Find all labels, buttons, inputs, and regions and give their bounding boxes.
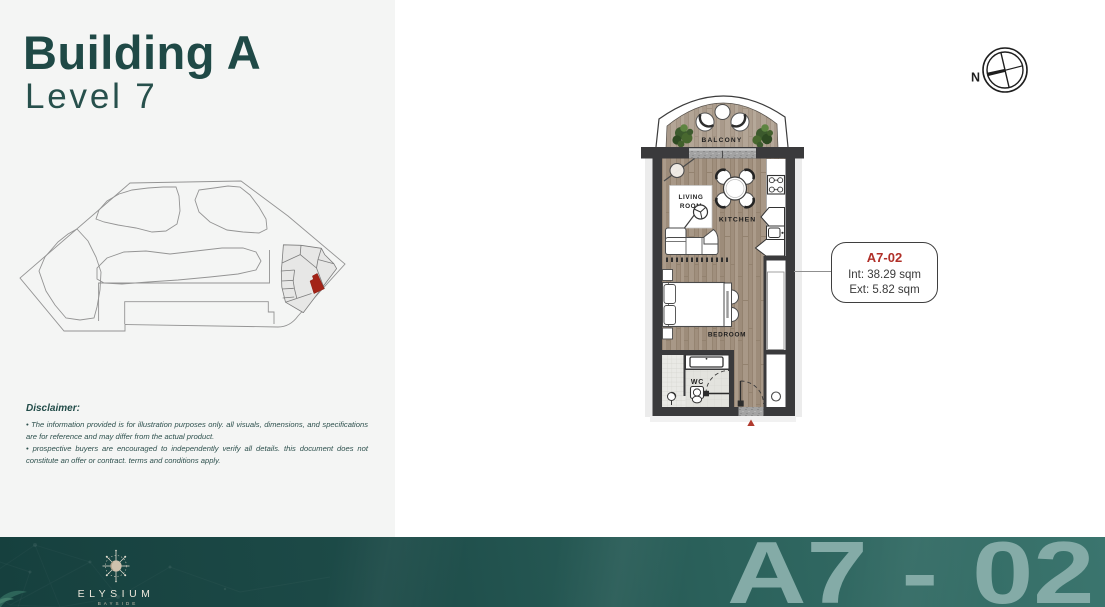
svg-text:BALCONY: BALCONY	[701, 137, 742, 144]
svg-text:LIVING: LIVING	[679, 194, 704, 201]
svg-text:N: N	[971, 71, 980, 85]
svg-text:WC: WC	[691, 379, 704, 386]
svg-text:KITCHEN: KITCHEN	[719, 217, 756, 224]
svg-text:BEDROOM: BEDROOM	[708, 331, 746, 338]
svg-text:ELYSIUM: ELYSIUM	[78, 588, 155, 600]
svg-text:BAYSIDE: BAYSIDE	[98, 601, 139, 606]
